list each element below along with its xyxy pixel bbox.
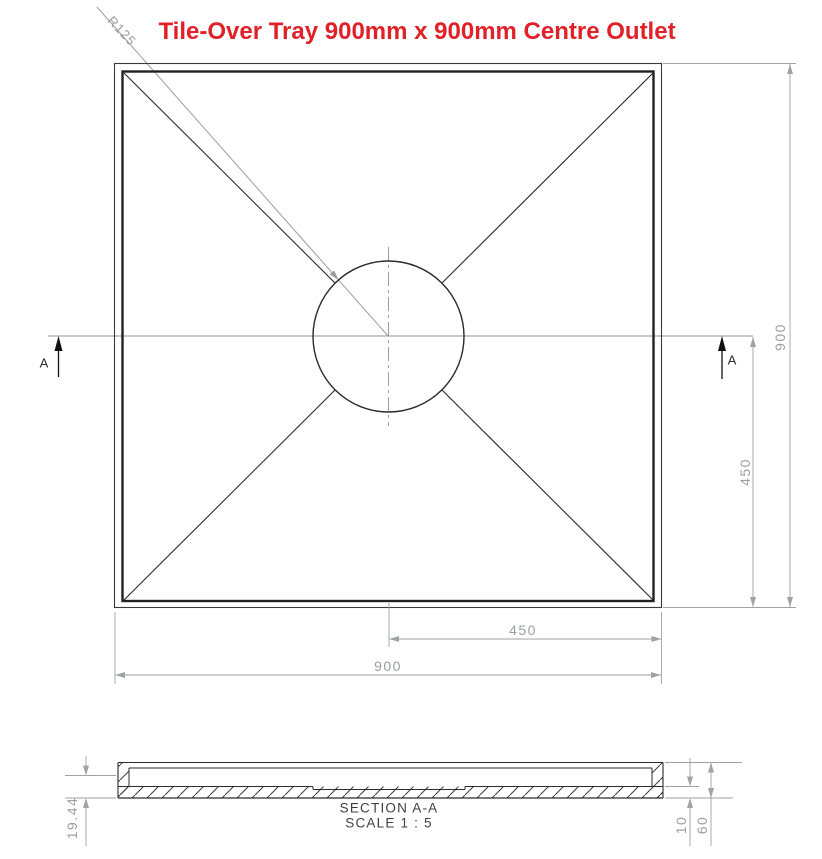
dim-label-height-900: 900: [772, 323, 788, 351]
section-profile: [118, 763, 663, 799]
section-view-title: SECTION A-A: [340, 801, 439, 816]
dim-label-width-900: 900: [374, 658, 402, 674]
section-letter-right: A: [728, 353, 737, 368]
plan-extension-lines: [115, 64, 796, 685]
dim-line-edge-19-44: [83, 756, 89, 846]
dim-label-base-10: 10: [673, 816, 689, 835]
drawing-title: Tile-Over Tray 900mm x 900mm Centre Outl…: [158, 18, 675, 46]
radius-leader-line: [97, 7, 389, 337]
section-arrow-right: [718, 336, 726, 379]
drawing-linework: [0, 0, 822, 859]
section-base-hatch: [118, 787, 663, 799]
dim-label-edge-19-44: 19.44: [64, 797, 80, 840]
section-view-scale: SCALE 1 : 5: [345, 816, 433, 831]
section-letter-left: A: [40, 356, 49, 371]
section-arrow-left: [55, 336, 63, 377]
drawing-canvas: Tile-Over Tray 900mm x 900mm Centre Outl…: [0, 0, 822, 859]
dim-label-total-60: 60: [694, 816, 710, 835]
dim-label-width-450: 450: [509, 622, 537, 638]
dim-label-height-450: 450: [737, 458, 753, 486]
